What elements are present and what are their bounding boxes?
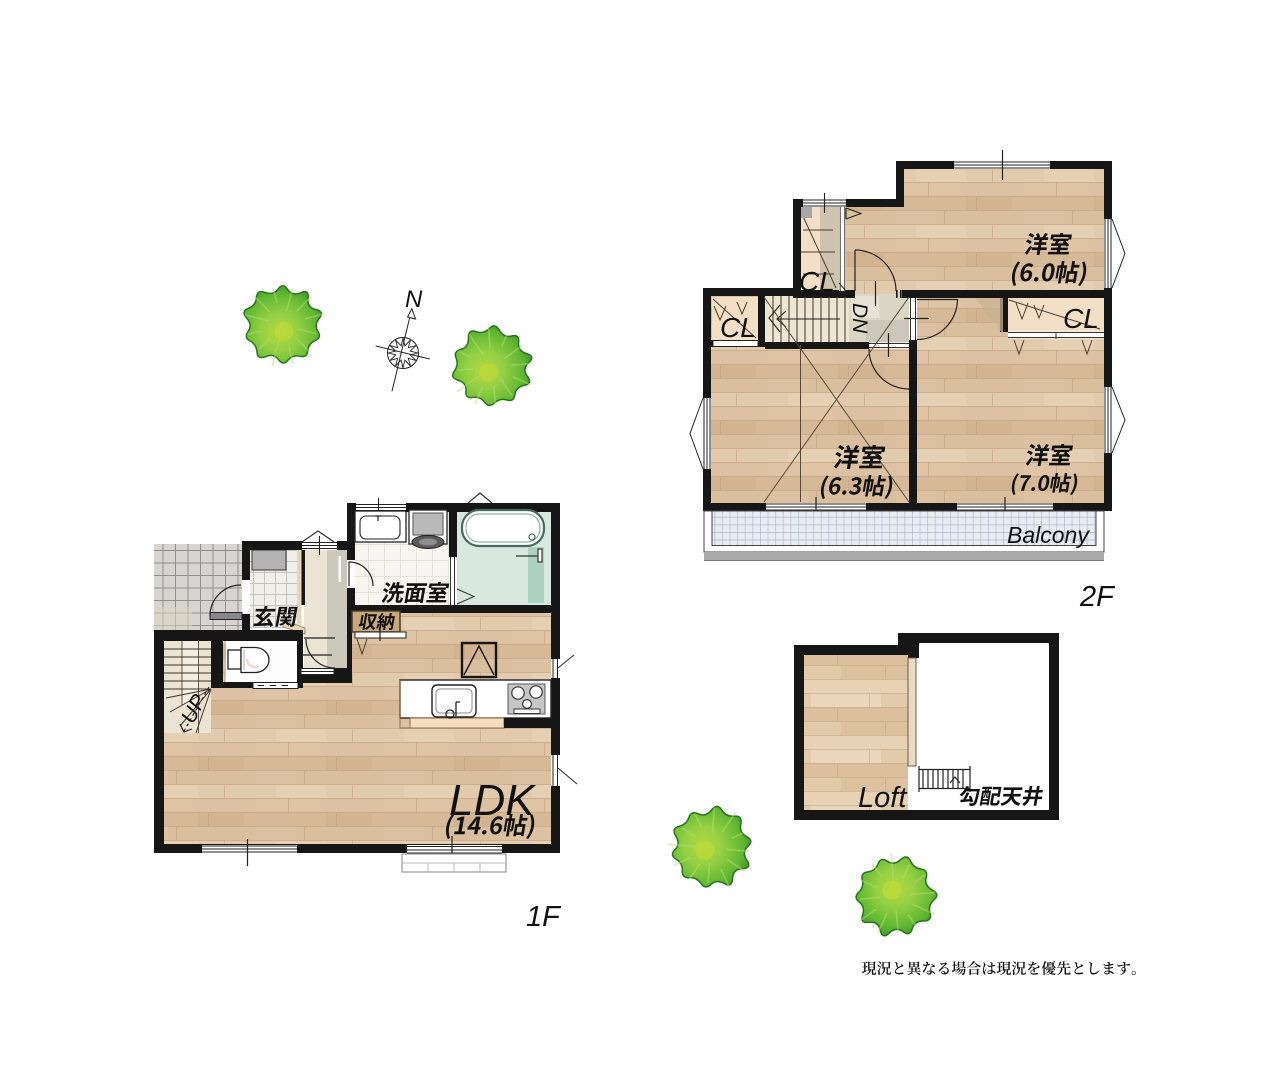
svg-text:CL: CL (1063, 303, 1099, 334)
svg-text:CL: CL (720, 312, 756, 343)
svg-text:CL: CL (799, 266, 835, 297)
svg-text:1F: 1F (526, 901, 562, 933)
svg-text:Balcony: Balcony (1007, 522, 1090, 548)
svg-text:Loft: Loft (858, 782, 908, 814)
svg-text:N: N (405, 286, 423, 313)
svg-text:2F: 2F (1079, 581, 1116, 613)
